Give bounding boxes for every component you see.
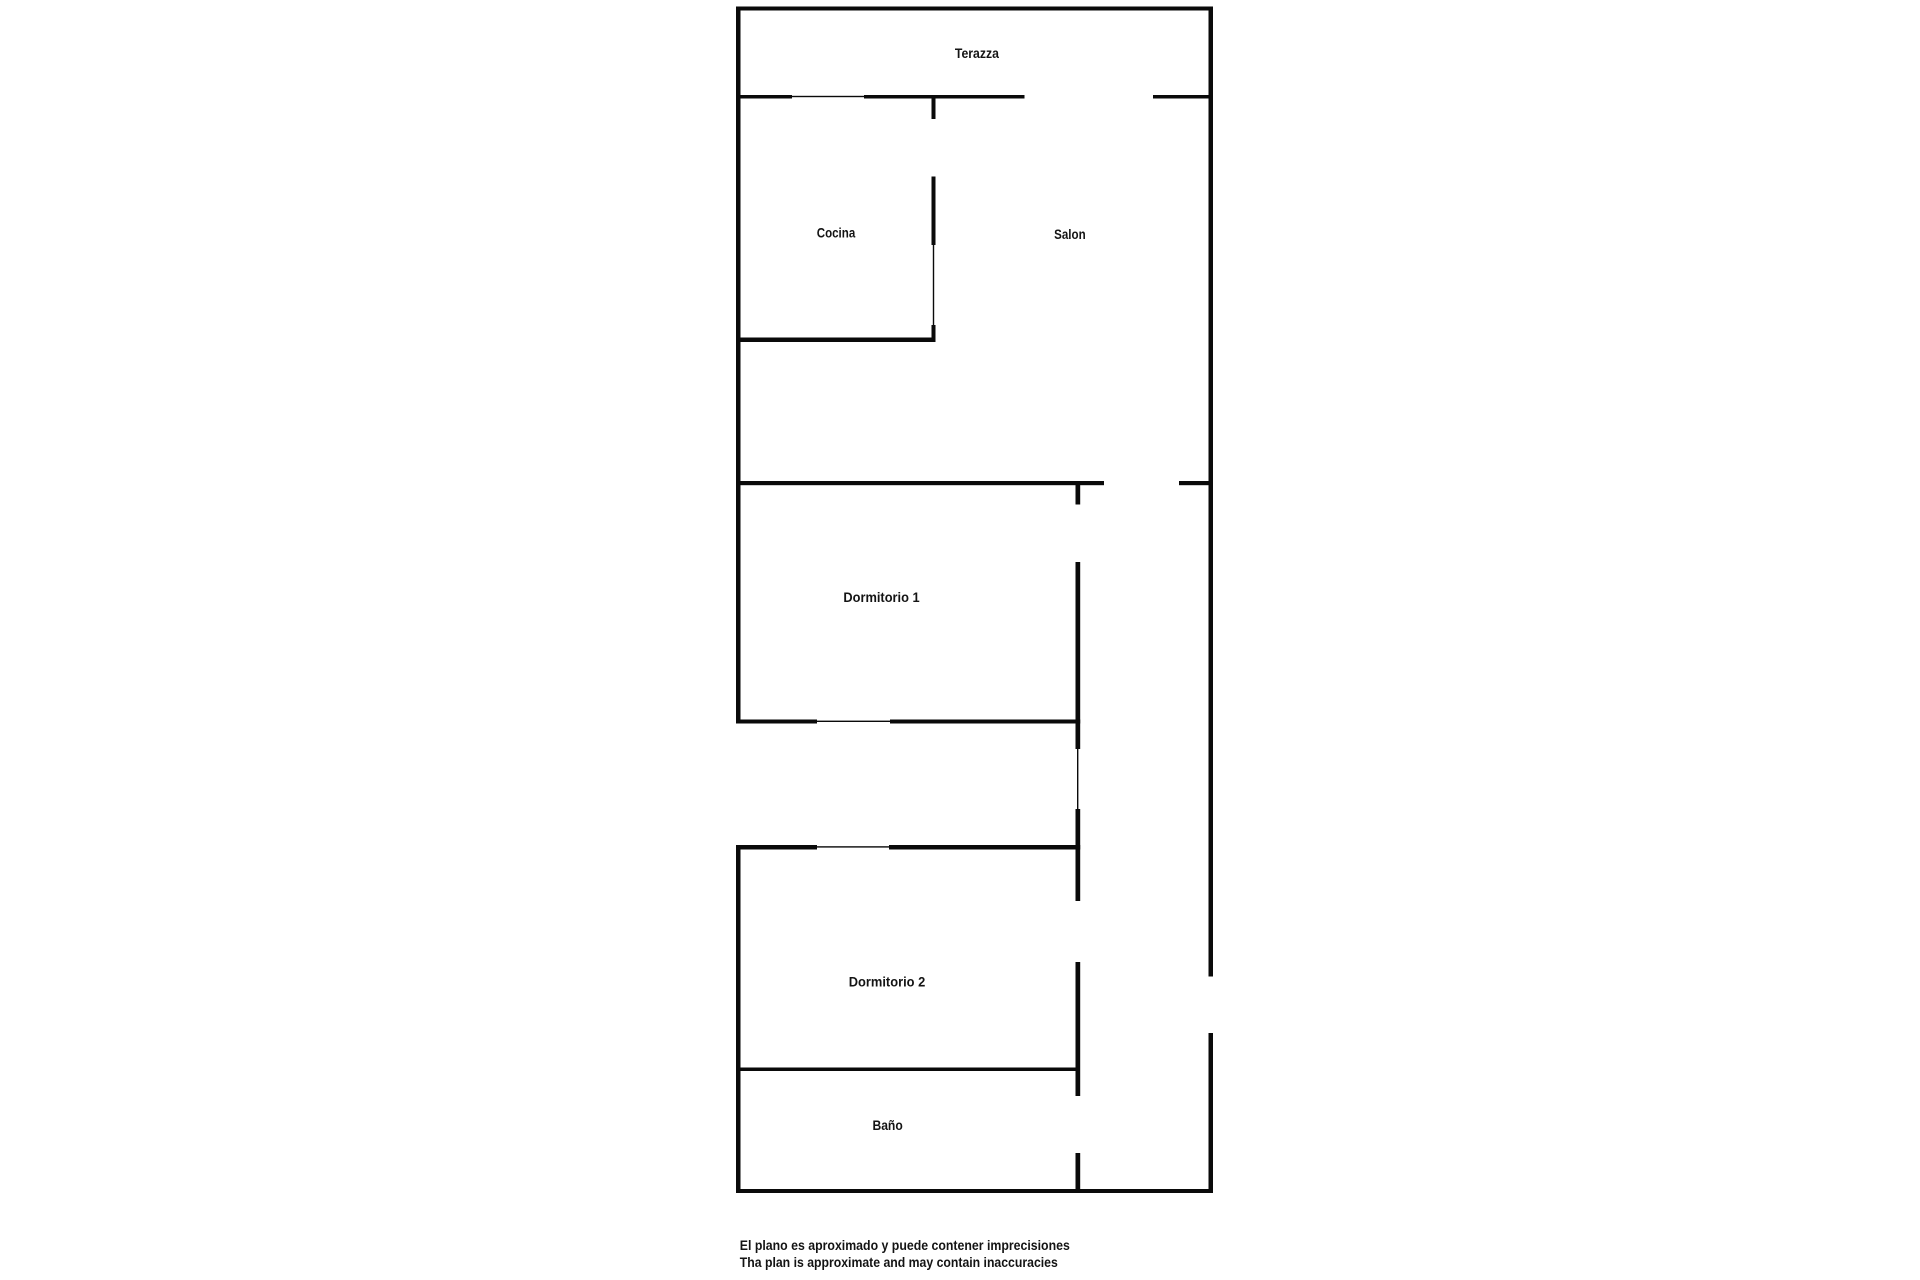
svg-text:Tha plan is approximate and ma: Tha plan is approximate and may contain … — [740, 1255, 1058, 1270]
svg-text:Salon: Salon — [1054, 226, 1086, 242]
svg-text:Dormitorio 2: Dormitorio 2 — [849, 974, 926, 990]
svg-text:El plano es aproximado y puede: El plano es aproximado y puede contener … — [740, 1238, 1070, 1253]
svg-text:Dormitorio 1: Dormitorio 1 — [843, 589, 919, 605]
svg-text:Cocina: Cocina — [817, 224, 856, 240]
svg-text:Baño: Baño — [872, 1117, 902, 1133]
svg-text:Terazza: Terazza — [955, 45, 999, 61]
